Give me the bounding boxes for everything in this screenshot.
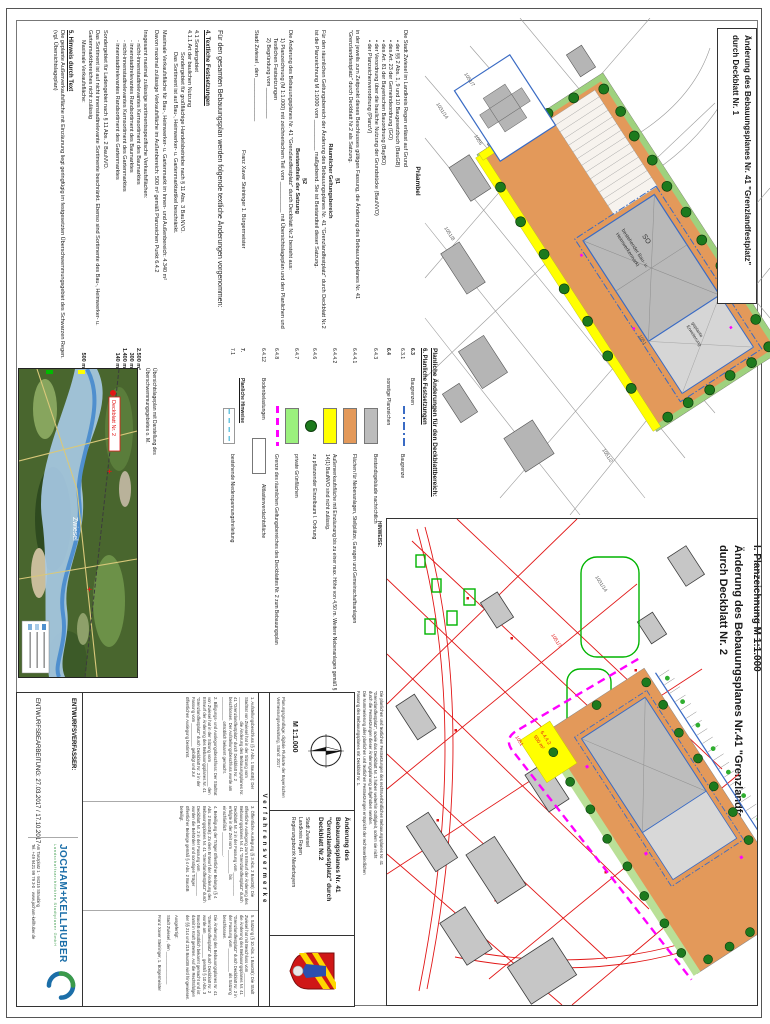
logo-subtitle: Landschaftsarchitekten Stadtplaner GmbH <box>54 844 58 963</box>
hinweis-text-body: Die geplante Außenverkaufsfläche mit Ein… <box>51 30 65 360</box>
par1-title: Räumlicher Geltungsbereich <box>326 30 333 332</box>
signature-city: Stadt Zwiesel , den ______________ <box>252 30 259 332</box>
entwurfsbearbeitung-label: ENTWURFSBEARBEITUNG: 27.03.2017 / 17.10.… <box>34 698 40 843</box>
par1-num: §1 <box>333 30 340 332</box>
geltungsbereich-line-symbol <box>276 406 279 446</box>
plan-sheet: Änderung des Bebauungsplanes Nr. 41 "Gre… <box>0 0 770 1024</box>
legend-row: 6.4.12BodenbelastungenAltlastenverdachts… <box>252 348 266 692</box>
par2-item2: 2) Begründung vom __________ <box>264 30 271 332</box>
vermerk-2: 2. Billigungs- und Auslegungsbeschluss: … <box>184 697 217 797</box>
hinweise-heading: HINWEISE: <box>375 521 382 547</box>
plan-heading-cell: Änderung des Bebauungsplanes Nr. 41 "Gre… <box>270 810 354 935</box>
svg-text:1051/2: 1051/2 <box>600 448 613 464</box>
vermerk-1: 1. Aufstellungsbeschluss (§ 2 Abs. 1 Bau… <box>222 697 255 797</box>
signature-name: Franz Xaver Steininger 1. Bürgermeister <box>239 30 246 332</box>
verfahrensvermerke: 1. Aufstellungsbeschluss (§ 2 Abs. 1 Bau… <box>83 693 258 1006</box>
svg-text:+: + <box>85 587 94 592</box>
entwurfsverfasser-label: ENTWURFSVERFASSER: <box>70 698 76 770</box>
legend-row: 6.4.7private Grünflächen <box>285 348 299 692</box>
heading-4-1-1: 4.1.1 Art der baulichen Nutzung <box>185 30 192 508</box>
bestand-swatch <box>364 408 378 444</box>
site-plan-deckblatt-2-frame: 6.4.4.2 500 m² 1051 1051/7 1031/14 <box>386 518 758 1006</box>
par2-title: Bestandteile der Satzung <box>293 30 300 332</box>
vermerk-3: 3. Öffentliche Auslegung (§ 3 Abs. 2 Bau… <box>222 806 255 906</box>
svg-text:1055: 1055 <box>472 134 483 147</box>
verfahrensvermerke-header: Verfahrensvermerke <box>258 693 270 1006</box>
tb-signature-city: Stadt Zwiesel , den ______________ <box>165 915 171 1002</box>
ladengebiet-2: Das Sortiment ist auf nicht innenstadtre… <box>86 30 100 360</box>
par2-body: Die Änderung des Bebauungsplanes Nr. 41 … <box>285 30 292 332</box>
datasource-note: Planungsgrundlage: digitale Flurkarte de… <box>275 697 286 805</box>
svg-text:1051/8: 1051/8 <box>442 226 455 242</box>
entwurf-row: ENTWURFSVERFASSER: ENTWURFSBEARBEITUNG: … <box>24 693 83 1006</box>
baugrenze-line-symbol <box>403 406 405 446</box>
sheet1-title-line1: Änderung des Bebauungsplanes Nr. 41 "Gre… <box>741 35 753 297</box>
site-dot <box>110 390 116 396</box>
sheet1-title-line2: durch Deckblatt Nr. 1 <box>730 35 742 297</box>
logo-name: JOCHAM+KELLHUBER <box>58 844 69 963</box>
ausgefertigt-label: Ausgefertigt: <box>174 915 180 1002</box>
heading-4: 4. Textliche Festsetzungen <box>202 30 210 508</box>
map-label: Deckblatt Nr. 2 <box>110 400 116 436</box>
legend-row: 6.4.8Grenze des räumlichen Geltungsberei… <box>272 348 278 692</box>
praeambel-bullets: • der §§ 2 Abs. 1, 9 und 10 Baugesetzbuc… <box>365 30 401 332</box>
praeambel-intro: Die Stadt Zwiesel im Landkreis Regen erl… <box>400 30 407 332</box>
svg-text:1031/14: 1031/14 <box>434 102 449 121</box>
praeambel-heading: Präambel <box>413 30 421 332</box>
gruenflaeche-swatch <box>285 408 299 444</box>
logo-swirl-icon <box>44 969 78 1002</box>
par2-item1: 1) Planzeichnung (M 1:1.000) mit zeichne… <box>271 30 285 332</box>
par1-body: Für den räumlichen Geltungsbereich der Ä… <box>312 30 326 332</box>
vermerk-6: Die Änderung des Bebauungsplanes Nr. 41 … <box>184 915 217 1002</box>
sheet1-title-box: Änderung des Bebauungsplanes Nr. 41 "Gre… <box>717 28 757 304</box>
satzung-text: Präambel Die Stadt Zwiesel im Landkreis … <box>239 30 421 332</box>
heading-4-1: 4.1 Sondergebiet <box>192 30 199 508</box>
logo-address-2: Tel. +49 9421 99 79 3-0 · www.jocham-kel… <box>30 844 35 1002</box>
zwiesel-coat-of-arms <box>288 950 336 992</box>
plan2-development-site: 6.4.4.2 500 m² <box>505 643 757 994</box>
aerial-caption: Übersichtslageplan mit Darstellung des Ü… <box>144 368 157 455</box>
max-verkaufsflaeche-1: Maximale Verkaufsfläche für Bau-, Heimwe… <box>159 30 166 508</box>
vermerk-4: 4. Beteiligung der Träger öffentlicher B… <box>179 806 218 906</box>
logo-block: JOCHAM+KELLHUBER Landschaftsarchitekten … <box>28 837 78 1002</box>
par2-num: §2 <box>300 30 307 332</box>
praeambel-closing: in der jeweils zum Zeitpunkt dieses Besc… <box>345 30 359 332</box>
legend-row: 6.4.4.2Außenverkaufsfläche mit Einzäunun… <box>323 348 337 692</box>
bodenbelastung-swatch <box>252 438 266 474</box>
city-label: Zwiesel <box>71 517 78 541</box>
aussenverkauf-swatch <box>323 408 337 444</box>
svg-text:1031/14: 1031/14 <box>593 575 608 594</box>
aerial-map: Zwiesel ++ Deckblatt Nr. 2 <box>18 368 138 678</box>
svg-text:1051/7: 1051/7 <box>549 633 562 649</box>
freileitung-symbol <box>223 408 235 444</box>
scale-cell: M 1:1.000 Planungsgrundlage: digitale Fl… <box>270 693 354 810</box>
mini-legend <box>22 621 49 673</box>
nebenanlagen-swatch <box>343 408 357 444</box>
scale-text: M 1:1.000 <box>291 721 298 753</box>
hinweise-block: HINWEISE: Die planlichen und textlichen … <box>356 521 384 1005</box>
legend-row: 7.Planliche Hinweise <box>239 348 245 692</box>
einzelbaum-symbol <box>305 420 317 432</box>
logo-address-1: Am Tanzplatz 1 · 94315 Straubing <box>36 844 41 1002</box>
north-arrow-icon <box>304 733 348 769</box>
legend-row: 6.4.6zu pflanzender Einzelbaum I. Ordnun… <box>305 348 317 692</box>
legend-row: 6.4.4.1Flächen für Nebenanlagen, Stellpl… <box>343 348 357 692</box>
vermerk-5: 5. Satzung (§ 10 Abs. 1 BauGB): Die Stad… <box>222 915 255 1002</box>
site-plan-deckblatt-2: 6.4.4.2 500 m² 1051 1051/7 1031/14 <box>387 519 757 1005</box>
title-block: M 1:1.000 Planungsgrundlage: digitale Fl… <box>16 692 355 1007</box>
legend-row: 7.1bestehende Niederspannungsfreileitung <box>223 348 235 692</box>
tb-signature-name: Franz Xaver Steininger, 1. Bürgermeister <box>157 915 163 1002</box>
textliche-intro: Für den gesamten Bebauungsplan werden fo… <box>215 30 224 330</box>
svg-text:+: + <box>105 469 114 474</box>
coat-of-arms-cell <box>270 935 354 1006</box>
